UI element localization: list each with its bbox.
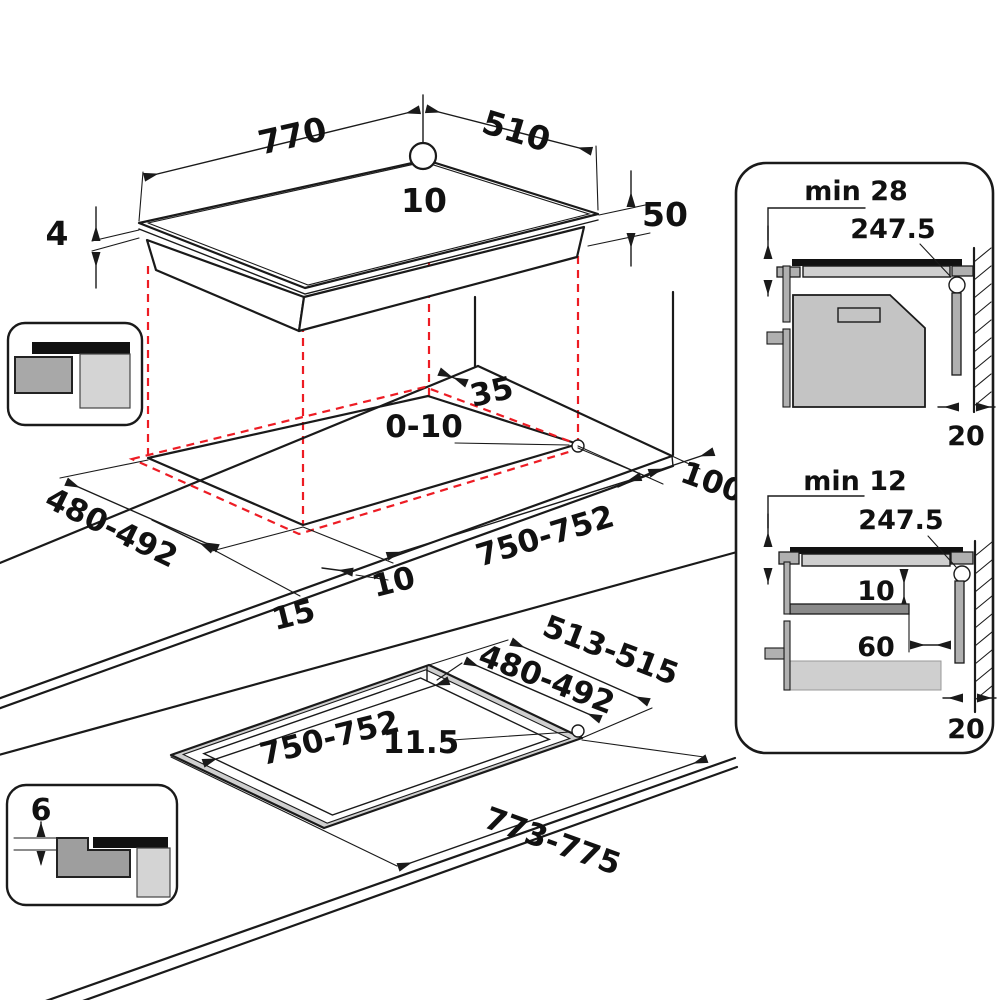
surface-cabinet-block xyxy=(80,354,130,408)
dim-body-height: 50 xyxy=(642,195,688,234)
corner-radius-marker xyxy=(572,725,584,737)
wall-spacer-top xyxy=(952,293,961,375)
dim-front-gap2: 10 xyxy=(368,560,419,605)
hole-center-marker-top xyxy=(949,277,965,293)
installation-diagram-page: 770 510 10 4 50 35 0-10 xyxy=(0,0,1000,1000)
surface-worktop-block xyxy=(15,357,72,393)
worktop-cutout-outline xyxy=(148,396,578,525)
surface-hob-profile xyxy=(32,342,130,354)
drawer-panel xyxy=(790,661,941,690)
cabinet-side-top1 xyxy=(783,266,790,322)
label-min12: min 12 xyxy=(803,466,907,497)
cabinet-side-top2 xyxy=(783,329,790,407)
dim-flush-cutout-width: 750-752 xyxy=(256,704,403,773)
right-bracket-top xyxy=(952,266,973,276)
surface-mount-inset xyxy=(8,323,142,425)
hob-body-profile-bottom xyxy=(802,554,950,566)
hob-profile-bottom xyxy=(790,547,963,554)
worktop-front-edge xyxy=(0,456,672,700)
flush-mount-view: 750-752 513-515 480-492 11.5 773-775 xyxy=(0,552,737,1000)
label-wall-gap-top: 20 xyxy=(947,421,985,452)
label-shelf-gap: 10 xyxy=(857,576,895,607)
dim-hob-width: 770 xyxy=(254,109,330,162)
dim-corner-gap: 0-10 xyxy=(385,409,463,445)
label-min28: min 28 xyxy=(804,176,908,207)
wall-spacer-bottom xyxy=(955,581,964,663)
hole-offset-marker xyxy=(410,143,436,169)
cabinet-side-bottom2 xyxy=(784,621,790,690)
flush-cabinet-block xyxy=(137,848,170,897)
label-hole-center-bottom: 247.5 xyxy=(858,505,943,536)
cabinet-rail-top xyxy=(767,332,783,344)
dim-cutout-width: 750-752 xyxy=(472,498,619,574)
dim-glass-thickness: 4 xyxy=(46,214,69,253)
flush-hob-profile xyxy=(93,837,168,848)
dim-rear-gap: 35 xyxy=(467,370,517,415)
installation-diagram: 770 510 10 4 50 35 0-10 xyxy=(0,0,1000,1000)
label-shelf-setback: 60 xyxy=(857,632,895,663)
dim-hole-offset: 10 xyxy=(401,181,447,220)
oven-vent xyxy=(838,308,880,322)
hob-profile-top xyxy=(792,259,962,266)
label-wall-gap-bottom: 20 xyxy=(947,714,985,745)
cabinet-side-bottom1 xyxy=(784,562,790,614)
dim-cutout-depth: 480-492 xyxy=(40,481,184,576)
hole-center-marker-bottom xyxy=(954,566,970,582)
label-hole-center-top: 247.5 xyxy=(850,214,935,245)
side-clearance-panel: min 28 247.5 xyxy=(736,163,996,753)
shelf-panel xyxy=(790,604,909,614)
dim-corner-radius: 11.5 xyxy=(383,725,460,761)
right-bracket-bottom xyxy=(951,552,973,564)
hob-body-profile-top xyxy=(803,266,950,277)
flush-frame-outer xyxy=(171,665,582,828)
flush-frame-band xyxy=(171,665,582,828)
cabinet-rail-bottom xyxy=(765,648,784,659)
dim-hob-depth: 510 xyxy=(478,102,555,159)
flush-mount-inset: 6 xyxy=(7,785,177,905)
hob-isometric-view: 770 510 10 4 50 xyxy=(46,95,688,525)
